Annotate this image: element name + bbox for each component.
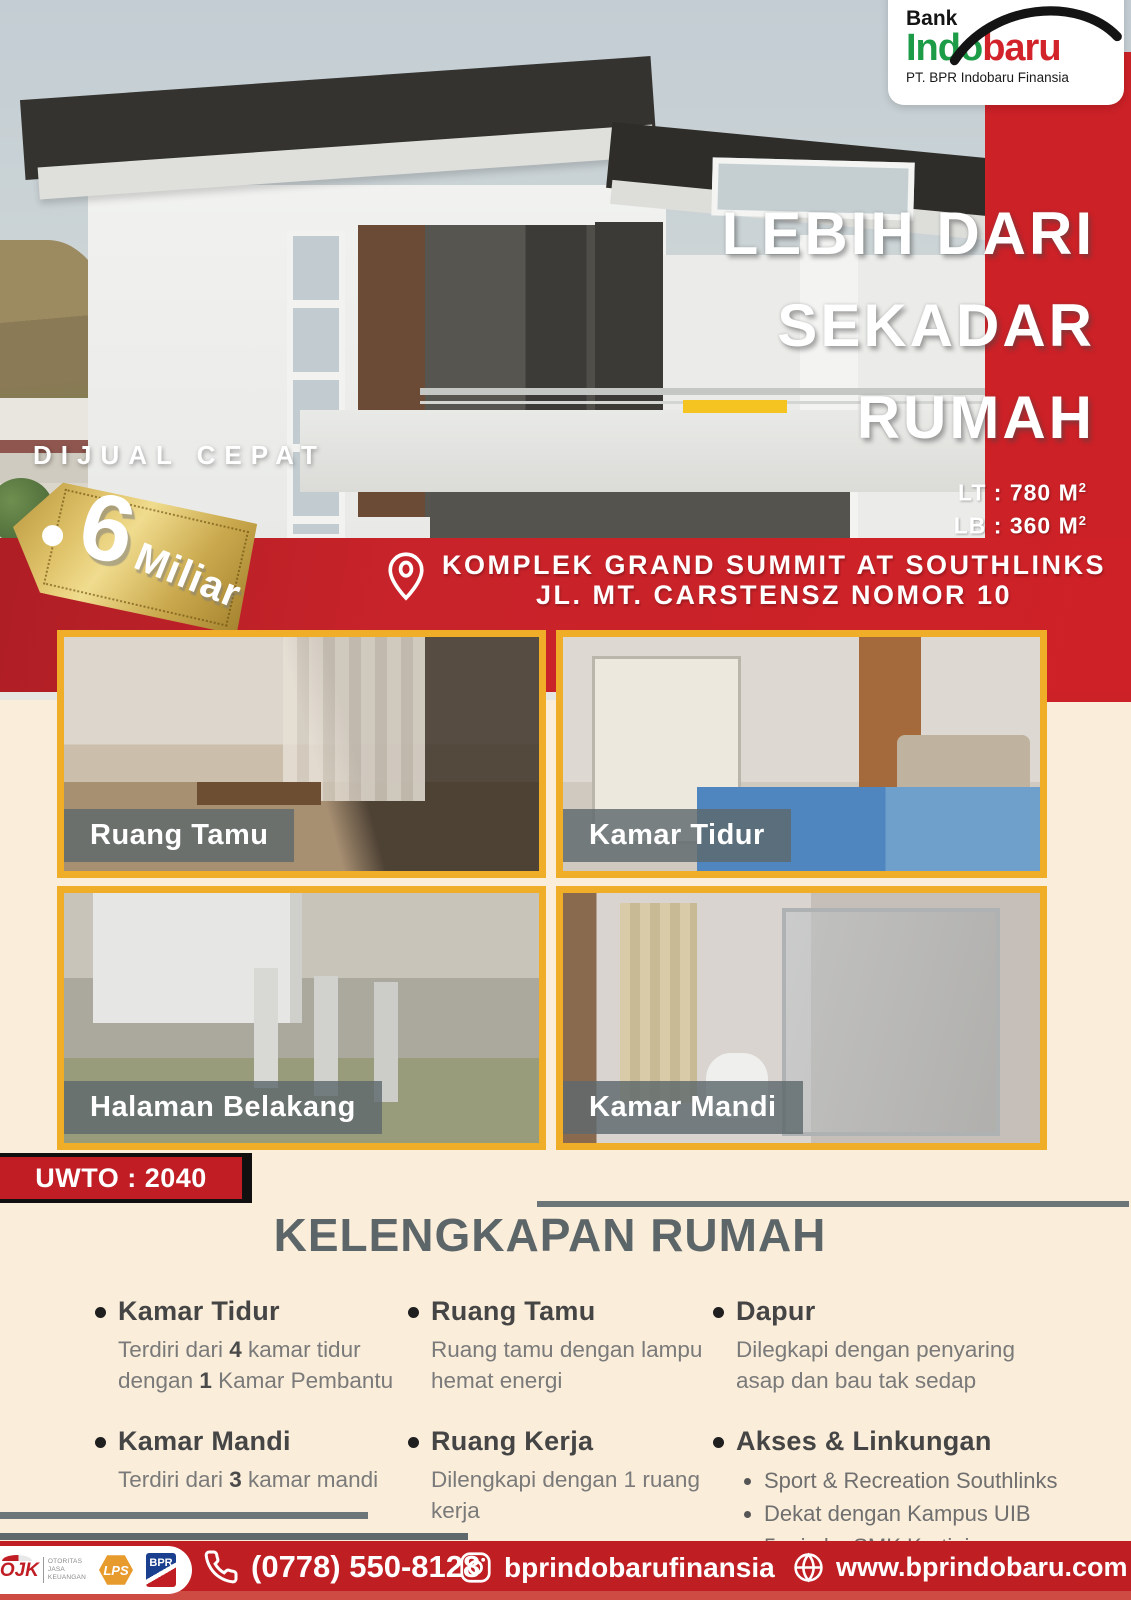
- photo-bedroom: Kamar Tidur: [556, 630, 1047, 878]
- headline-line2: SEKADAR: [722, 280, 1095, 372]
- area-info: LT : 780 M2 LB : 360 M2: [954, 474, 1087, 539]
- curtain-art: [283, 637, 426, 801]
- location-pin-icon: [385, 548, 427, 606]
- feature-title: Kamar Tidur: [118, 1296, 408, 1327]
- access-item: Dekat dengan Kampus UIB: [764, 1497, 1115, 1530]
- feature-kitchen: Dapur Dilegkapi dengan penyaring asap da…: [713, 1296, 1115, 1396]
- feature-work-room: Ruang Kerja Dilengkapi dengan 1 ruang ke…: [408, 1426, 713, 1526]
- bullet-dot: [95, 1307, 106, 1318]
- bank-name-red: baru: [982, 27, 1060, 69]
- photo-label: Kamar Mandi: [563, 1081, 803, 1134]
- photo-living-room: Ruang Tamu: [57, 630, 546, 878]
- bank-logo-card: Bank Indobaru PT. BPR Indobaru Finansia: [888, 0, 1124, 105]
- feature-desc: Dilegkapi dengan penyaring asap dan bau …: [736, 1334, 1036, 1396]
- ojk-caption: OTORITAS JASA KEUANGAN: [48, 1558, 86, 1582]
- bullet-dot: [713, 1307, 724, 1318]
- ojk-logo: OJK OTORITAS JASA KEUANGAN: [0, 1557, 86, 1583]
- phone-icon: [203, 1549, 239, 1585]
- bank-name-green: Indo: [906, 27, 982, 69]
- photo-label: Kamar Tidur: [563, 809, 791, 862]
- address-block: KOMPLEK GRAND SUMMIT AT SOUTHLINKS JL. M…: [438, 550, 1110, 610]
- land-area: LT : 780 M2: [954, 474, 1087, 507]
- website-contact[interactable]: www.bprindobaru.com: [793, 1552, 1128, 1583]
- lps-logo: LPS: [99, 1554, 133, 1586]
- table-art: [197, 782, 321, 805]
- house-window-art: [287, 230, 345, 540]
- photo-backyard: Halaman Belakang: [57, 886, 546, 1150]
- headline-line3: RUMAH: [722, 372, 1095, 464]
- globe-icon: [793, 1552, 824, 1583]
- yellow-dash: [683, 400, 787, 413]
- divider-line: [0, 1512, 368, 1519]
- photo-label: Halaman Belakang: [64, 1081, 382, 1134]
- headline: LEBIH DARI SEKADAR RUMAH: [722, 188, 1095, 464]
- feature-bedrooms: Kamar Tidur Terdiri dari 4 kamar tidur d…: [95, 1296, 408, 1396]
- regulator-logos: OJK OTORITAS JASA KEUANGAN LPS BPR: [0, 1546, 192, 1594]
- photo-label: Ruang Tamu: [64, 809, 294, 862]
- house-opening-art: [430, 492, 850, 538]
- website-url: www.bprindobaru.com: [836, 1552, 1128, 1583]
- shower-curtain-art: [620, 903, 696, 1103]
- sup-2: 2: [1079, 480, 1087, 495]
- feature-living-room: Ruang Tamu Ruang tamu dengan lampu hemat…: [408, 1296, 713, 1396]
- instagram-contact[interactable]: bprindobarufinansia: [459, 1551, 775, 1584]
- address-line1: KOMPLEK GRAND SUMMIT AT SOUTHLINKS: [438, 550, 1110, 580]
- instagram-handle: bprindobarufinansia: [504, 1552, 775, 1584]
- bullet-dot: [408, 1437, 419, 1448]
- feature-title: Akses & Linkungan: [736, 1426, 1115, 1457]
- headline-line1: LEBIH DARI: [722, 188, 1095, 280]
- feature-title: Kamar Mandi: [118, 1426, 408, 1457]
- bpr-logo: BPR: [146, 1553, 176, 1587]
- feature-title: Dapur: [736, 1296, 1115, 1327]
- feature-desc: Ruang tamu dengan lampu hemat energi: [431, 1334, 713, 1396]
- building-area: LB : 360 M2: [954, 507, 1087, 540]
- sup-2: 2: [1079, 513, 1087, 528]
- sale-label: DIJUAL CEPAT: [33, 440, 326, 471]
- phone-contact[interactable]: (0778) 550-8128: [203, 1549, 480, 1585]
- bank-name: Indobaru: [906, 29, 1106, 67]
- uwto-badge: UWTO : 2040: [0, 1157, 242, 1199]
- feature-desc: Dilengkapi dengan 1 ruang kerja: [431, 1464, 713, 1526]
- ojk-divider: [43, 1557, 44, 1583]
- feature-desc: Terdiri dari 3 kamar mandi: [118, 1464, 408, 1495]
- instagram-icon: [459, 1551, 492, 1584]
- address-line2: JL. MT. CARSTENSZ NOMOR 10: [438, 580, 1110, 610]
- shower-glass-art: [782, 908, 1000, 1136]
- access-item: Sport & Recreation Southlinks: [764, 1464, 1115, 1497]
- feature-bathrooms: Kamar Mandi Terdiri dari 3 kamar mandi: [95, 1426, 408, 1495]
- bullet-dot: [713, 1437, 724, 1448]
- bank-word: Bank: [906, 8, 1106, 29]
- feature-title: Ruang Kerja: [431, 1426, 713, 1457]
- bank-subtitle: PT. BPR Indobaru Finansia: [906, 70, 1106, 85]
- features-title: KELENGKAPAN RUMAH: [0, 1208, 1100, 1262]
- divider-line: [537, 1201, 1129, 1207]
- feature-desc: Terdiri dari 4 kamar tidur dengan 1 Kama…: [118, 1334, 408, 1396]
- bullet-dot: [408, 1307, 419, 1318]
- photo-bathroom: Kamar Mandi: [556, 886, 1047, 1150]
- stilts-art: [254, 968, 278, 1088]
- bullet-dot: [95, 1437, 106, 1448]
- real-estate-flyer: Bank Indobaru PT. BPR Indobaru Finansia …: [0, 0, 1131, 1600]
- feature-title: Ruang Tamu: [431, 1296, 713, 1327]
- divider-line: [0, 1533, 468, 1540]
- phone-number: (0778) 550-8128: [251, 1549, 480, 1585]
